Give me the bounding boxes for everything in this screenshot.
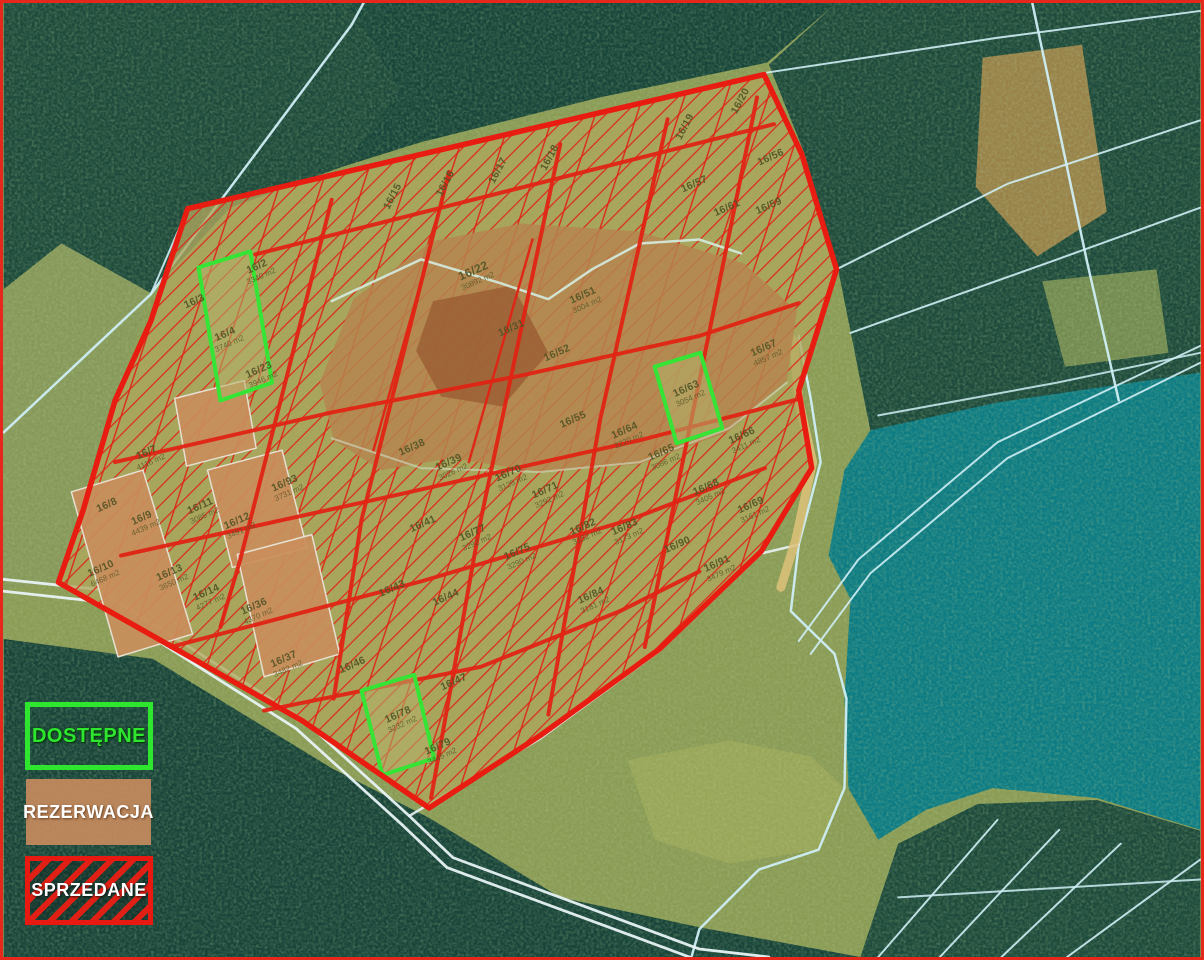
aerial-parcel-map: 16/23340 m216/316/233946 m216/74116 m216… bbox=[0, 0, 1204, 960]
map-canvas: 16/23340 m216/316/233946 m216/74116 m216… bbox=[3, 3, 1201, 957]
